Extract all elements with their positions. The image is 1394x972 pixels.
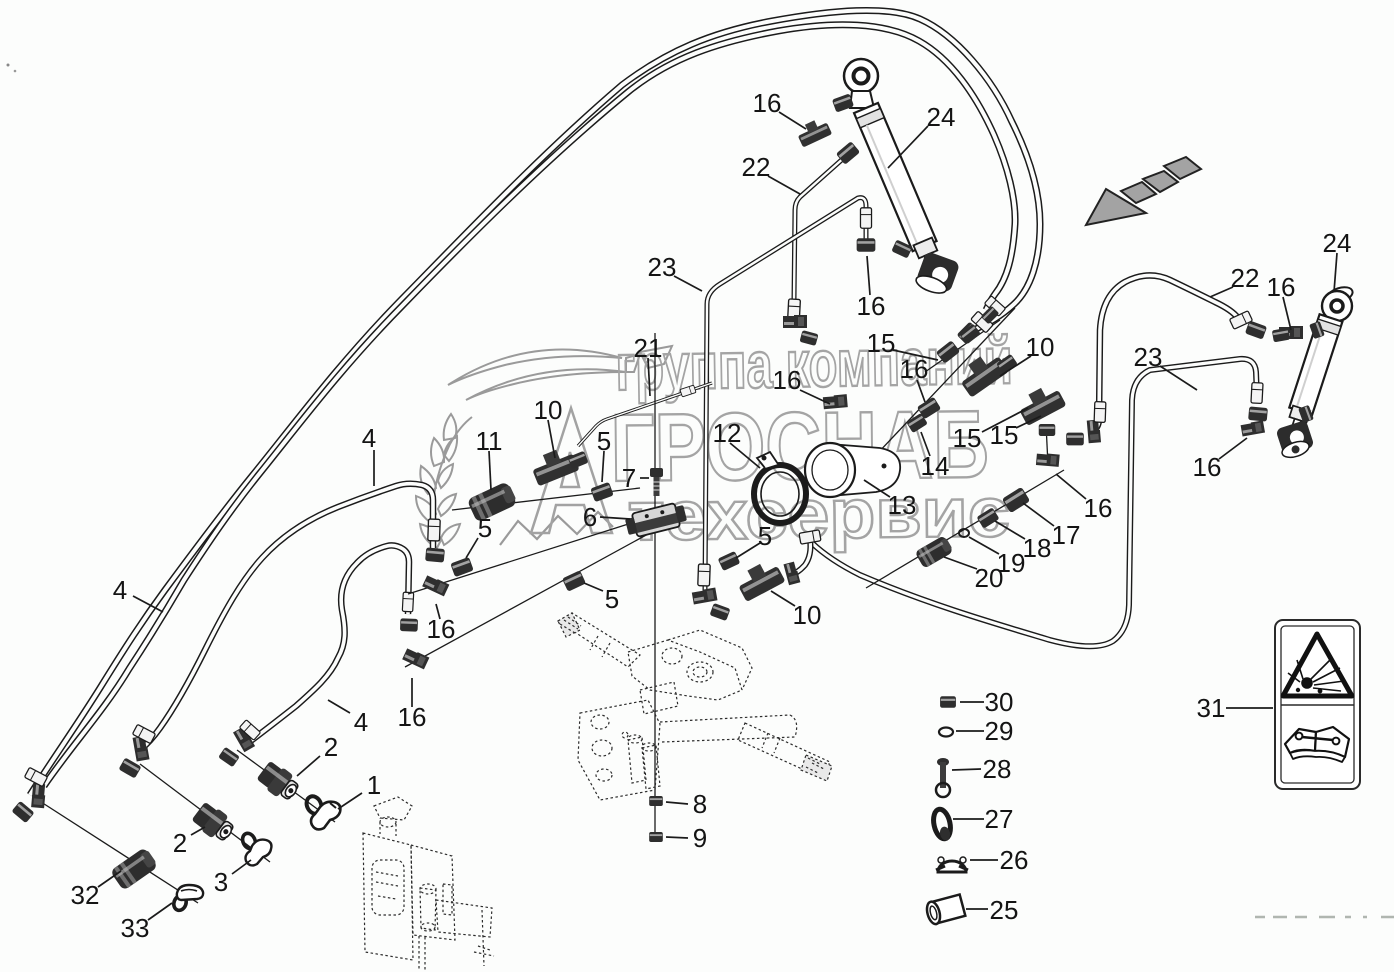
svg-text:5: 5 (478, 513, 492, 543)
svg-text:20: 20 (975, 563, 1004, 593)
svg-text:10: 10 (793, 600, 822, 630)
svg-text:23: 23 (648, 252, 677, 282)
svg-text:18: 18 (1023, 533, 1052, 563)
svg-text:15: 15 (953, 423, 982, 453)
svg-text:5: 5 (605, 584, 619, 614)
svg-text:16: 16 (1267, 272, 1296, 302)
svg-text:5: 5 (597, 426, 611, 456)
svg-text:14: 14 (921, 451, 950, 481)
svg-text:15: 15 (990, 420, 1019, 450)
svg-text:16: 16 (857, 291, 886, 321)
svg-text:5: 5 (758, 521, 772, 551)
svg-text:24: 24 (1323, 228, 1352, 258)
svg-text:1: 1 (367, 770, 381, 800)
svg-text:4: 4 (362, 423, 376, 453)
svg-text:16: 16 (753, 88, 782, 118)
svg-text:4: 4 (113, 575, 127, 605)
svg-text:6: 6 (583, 502, 597, 532)
svg-text:3: 3 (214, 867, 228, 897)
svg-text:23: 23 (1134, 342, 1163, 372)
svg-text:2: 2 (324, 732, 338, 762)
svg-text:8: 8 (693, 789, 707, 819)
svg-text:13: 13 (888, 490, 917, 520)
svg-text:29: 29 (985, 716, 1014, 746)
svg-text:10: 10 (534, 395, 563, 425)
svg-text:16: 16 (1084, 493, 1113, 523)
svg-text:4: 4 (354, 707, 368, 737)
svg-text:9: 9 (693, 823, 707, 853)
svg-text:11: 11 (476, 426, 503, 456)
svg-text:16: 16 (900, 354, 929, 384)
svg-text:30: 30 (985, 687, 1014, 717)
svg-text:17: 17 (1052, 520, 1081, 550)
svg-text:16: 16 (398, 702, 427, 732)
svg-text:22: 22 (1231, 263, 1260, 293)
svg-text:15: 15 (867, 328, 896, 358)
svg-text:22: 22 (742, 152, 771, 182)
svg-text:26: 26 (1000, 845, 1029, 875)
svg-text:27: 27 (985, 804, 1014, 834)
svg-text:16: 16 (1193, 452, 1222, 482)
svg-text:12: 12 (713, 418, 742, 448)
svg-text:25: 25 (990, 895, 1019, 925)
svg-text:33: 33 (121, 913, 150, 943)
svg-text:16: 16 (427, 614, 456, 644)
svg-text:24: 24 (927, 102, 956, 132)
svg-text:28: 28 (983, 754, 1012, 784)
svg-text:7: 7 (622, 463, 636, 493)
svg-text:21: 21 (634, 333, 663, 363)
svg-text:16: 16 (773, 365, 802, 395)
svg-text:32: 32 (71, 880, 100, 910)
svg-text:2: 2 (173, 828, 187, 858)
svg-text:31: 31 (1197, 693, 1226, 723)
svg-text:10: 10 (1026, 332, 1055, 362)
